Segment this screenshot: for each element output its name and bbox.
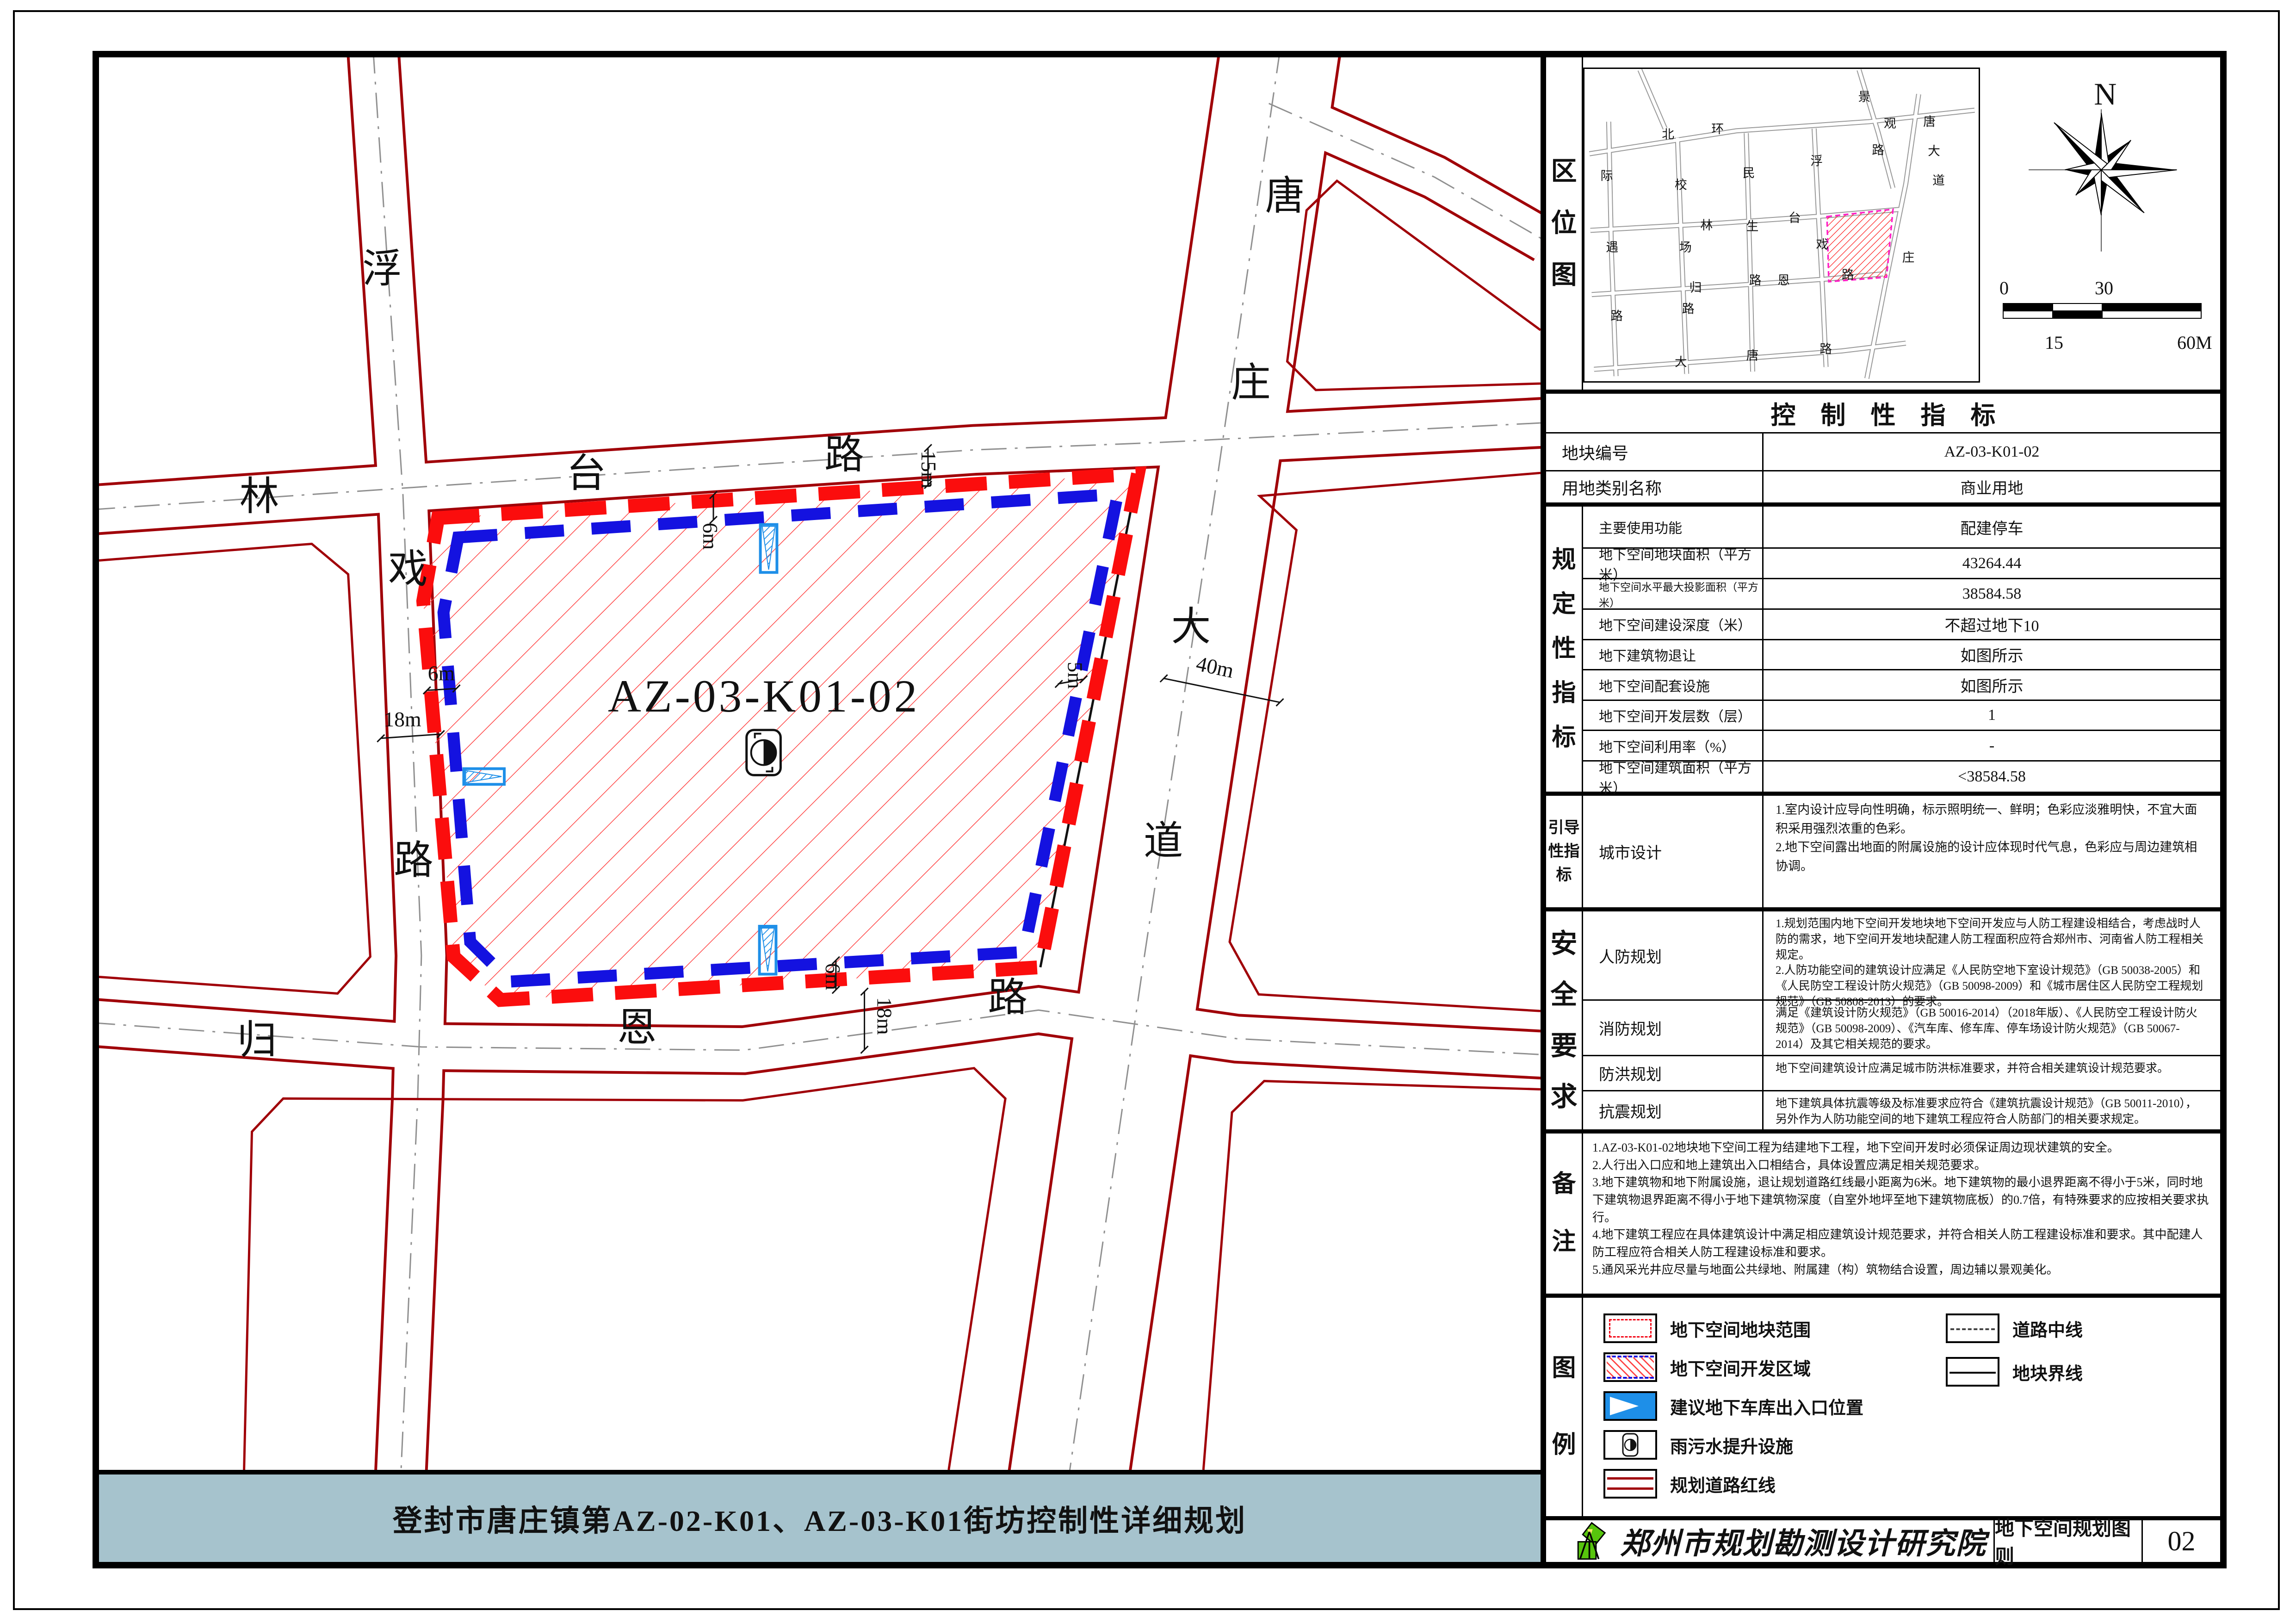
svg-text:唐: 唐 [1265, 174, 1305, 218]
institute-logo [1572, 1521, 1608, 1561]
entrance-swatch [1603, 1391, 1657, 1421]
note-item: 1.AZ-03-K01-02地块地下空间工程为结建地下工程，地下空间开发时必须保… [1592, 1139, 2211, 1157]
svg-text:60M: 60M [2177, 332, 2212, 353]
table-row: 城市设计 1.室内设计应导向性明确，标示照明统一、鲜明；色彩应淡雅明快，不宜大面… [1583, 796, 2220, 907]
table-row: 地下空间建筑面积（平方米） <38584.58 [1583, 760, 2220, 792]
svg-text:大: 大 [1928, 144, 1940, 158]
safety-text: 1.规划范围内地下空间开发地块地下空间开发应与人防工程建设相结合，考虑战时人防的… [1776, 916, 2208, 963]
table-row: 消防规划 满足《建筑设计防火规范》（GB 50016-2014）（2018年版）… [1583, 999, 2220, 1055]
table-title: 控制性指标 [1546, 394, 2220, 434]
indicator-panel: 区位图 [1546, 57, 2220, 1562]
table-row: 地下空间开发层数（层） 1 [1583, 700, 2220, 730]
svg-text:戏: 戏 [388, 547, 428, 591]
road-redline-swatch [1603, 1469, 1657, 1499]
location-section-label: 区位图 [1546, 57, 1583, 390]
svg-text:景: 景 [1858, 90, 1871, 104]
legend-item: 地块界线 [1946, 1355, 2220, 1388]
title-block: 郑州市规划勘测设计研究院 地下空间规划图则 02 [1546, 1520, 2220, 1562]
legend-item: 雨污水提升设施 [1603, 1428, 1946, 1462]
table-row: 主要使用功能 配建停车 [1583, 507, 2220, 547]
svg-text:路: 路 [824, 433, 864, 477]
svg-text:大: 大 [1675, 355, 1687, 369]
svg-text:路: 路 [1872, 143, 1884, 157]
svg-text:6m: 6m [428, 661, 455, 685]
svg-text:观: 观 [1884, 117, 1896, 130]
location-section: 区位图 [1546, 57, 2220, 394]
svg-text:唐: 唐 [1746, 348, 1759, 362]
svg-text:民: 民 [1743, 166, 1755, 180]
note-item: 3.地下建筑物和地下附属设施，退让规划道路红线最小距离为6米。地下建筑物的最小退… [1592, 1174, 2211, 1226]
sewage-lift-icon [747, 730, 781, 775]
svg-text:北: 北 [1662, 128, 1674, 142]
svg-text:N: N [2094, 76, 2117, 112]
svg-text:路: 路 [1842, 268, 1854, 282]
svg-text:路: 路 [1819, 342, 1832, 356]
table-row: 防洪规划 地下空间建筑设计应满足城市防洪标准要求，并符合相关建筑设计规范要求。 [1583, 1055, 2220, 1090]
svg-text:路: 路 [1749, 273, 1762, 287]
legend-section: 图例 地下空间地块范围 地下空间开发区域 [1546, 1298, 2220, 1520]
plan-map: 6m 18m 6m 15m 5m 40m 6m 18m 浮 戏 路 林 台 路 … [99, 57, 1541, 1470]
svg-text:30: 30 [2095, 278, 2113, 298]
svg-text:道: 道 [1144, 819, 1183, 863]
sheet-type: 地下空间规划图则 [1993, 1520, 2141, 1562]
guidance-section: 引导性指标 城市设计 1.室内设计应导向性明确，标示照明统一、鲜明；色彩应淡雅明… [1546, 796, 2220, 911]
svg-text:路: 路 [394, 838, 433, 882]
dev-area-swatch [1607, 1356, 1654, 1379]
north-arrow: N [2023, 71, 2180, 256]
table-row: 用地类别名称 商业用地 [1546, 470, 2220, 507]
svg-text:戏: 戏 [1816, 238, 1828, 252]
note-item: 4.地下建筑工程应在具体建筑设计中满足相应建筑设计规范要求，并符合相关人防工程建… [1592, 1226, 2211, 1261]
table-row: 地下空间水平最大投影面积（平方米） 38584.58 [1583, 578, 2220, 608]
legend-item: 规划道路红线 [1603, 1467, 1946, 1500]
guide-text-2: 2.地下空间露出地面的附属设施的设计应体现时代气息，色彩应与周边建筑相协调。 [1776, 838, 2208, 875]
svg-text:归: 归 [237, 1018, 277, 1062]
svg-text:大: 大 [1171, 605, 1211, 649]
svg-text:18m: 18m [873, 997, 896, 1035]
safety-section: 安全要求 人防规划 1.规划范围内地下空间开发地块地下空间开发应与人防工程建设相… [1546, 911, 2220, 1134]
table-row: 地下空间利用率（%） - [1583, 730, 2220, 760]
sewage-swatch [1603, 1430, 1657, 1460]
sheet-title-bar: 登封市唐庄镇第AZ-02-K01、AZ-03-K01街坊控制性详细规划 [99, 1470, 1541, 1562]
svg-text:庄: 庄 [1902, 250, 1915, 264]
parcel-line-swatch [1946, 1357, 1999, 1387]
svg-text:台: 台 [1789, 211, 1801, 225]
svg-text:场: 场 [1679, 240, 1692, 254]
minimap-plot [1827, 209, 1893, 282]
svg-text:林: 林 [240, 475, 279, 519]
prescriptive-section: 规定性指标 主要使用功能 配建停车 地下空间地块面积（平方米） 43264.44… [1546, 507, 2220, 796]
scale-bar: 0 30 15 60M [1994, 275, 2216, 353]
table-row: 地下空间配套设施 如图所示 [1583, 669, 2220, 700]
plot-code-label: AZ-03-K01-02 [608, 670, 920, 722]
svg-text:唐: 唐 [1923, 115, 1936, 129]
svg-text:恩: 恩 [1777, 273, 1790, 287]
table-row: 抗震规划 地下建筑具体抗震等级及标准要求应符合《建筑抗震设计规范》（GB 500… [1583, 1090, 2220, 1129]
note-item: 2.人行出入口应和地上建筑出入口相结合，具体设置应满足相关规范要求。 [1592, 1157, 2211, 1174]
svg-text:5m: 5m [1064, 662, 1087, 689]
north-and-scale: N [1980, 57, 2220, 390]
svg-text:6m: 6m [821, 963, 845, 991]
guide-text-1: 1.室内设计应导向性明确，标示照明统一、鲜明；色彩应淡雅明快，不宜大面积采用强烈… [1776, 800, 2208, 838]
svg-text:恩: 恩 [617, 1006, 657, 1050]
svg-text:15: 15 [2045, 332, 2063, 353]
plan-sheet: 6m 18m 6m 15m 5m 40m 6m 18m 浮 戏 路 林 台 路 … [0, 0, 2296, 1623]
legend-item: 道路中线 [1946, 1312, 2220, 1345]
plot-range-swatch [1609, 1319, 1652, 1338]
svg-text:归: 归 [1690, 281, 1702, 295]
svg-text:15m: 15m [917, 451, 941, 488]
table-row: 地下空间地块面积（平方米） 43264.44 [1583, 547, 2220, 578]
svg-text:校: 校 [1675, 178, 1687, 192]
svg-text:林: 林 [1701, 218, 1713, 232]
svg-text:庄: 庄 [1231, 361, 1271, 405]
svg-text:路: 路 [1682, 302, 1695, 316]
svg-text:浮: 浮 [1810, 154, 1823, 168]
svg-text:浮: 浮 [362, 247, 402, 291]
legend-item: 建议地下车库出入口位置 [1603, 1389, 1946, 1423]
location-minimap: 北环 景观 路唐 大道 庄际 遇路 校场 路民 生路 浮戏 林台 归恩 [1583, 68, 1980, 383]
svg-text:生: 生 [1746, 219, 1759, 233]
sheet-title: 登封市唐庄镇第AZ-02-K01、AZ-03-K01街坊控制性详细规划 [393, 1497, 1247, 1540]
svg-text:遇: 遇 [1606, 240, 1618, 254]
svg-text:路: 路 [988, 976, 1027, 1020]
institute-name: 郑州市规划勘测设计研究院 [1620, 1520, 1987, 1562]
table-row: 地块编号 AZ-03-K01-02 [1546, 434, 2220, 470]
sheet-number: 02 [2141, 1520, 2220, 1562]
svg-text:际: 际 [1600, 169, 1613, 183]
svg-text:台: 台 [566, 452, 606, 496]
svg-text:环: 环 [1711, 122, 1724, 136]
svg-text:路: 路 [1610, 309, 1623, 323]
note-item: 5.通风采光井应尽量与地面公共绿地、附属建（构）筑物结合设置，周边辅以景观美化。 [1592, 1261, 2211, 1279]
svg-text:0: 0 [1999, 278, 2009, 298]
table-row: 地下建筑物退让 如图所示 [1583, 639, 2220, 669]
svg-text:道: 道 [1932, 173, 1945, 187]
legend-item: 地下空间地块范围 [1603, 1312, 1946, 1345]
table-row: 地下空间建设深度（米） 不超过地下10 [1583, 608, 2220, 639]
notes-section: 备注 1.AZ-03-K01-02地块地下空间工程为结建地下工程，地下空间开发时… [1546, 1134, 2220, 1298]
table-row: 人防规划 1.规划范围内地下空间开发地块地下空间开发应与人防工程建设相结合，考虑… [1583, 911, 2220, 999]
svg-text:18m: 18m [384, 707, 421, 731]
legend-item: 地下空间开发区域 [1603, 1350, 1946, 1384]
drawing-frame: 6m 18m 6m 15m 5m 40m 6m 18m 浮 戏 路 林 台 路 … [93, 51, 2227, 1568]
svg-text:6m: 6m [699, 523, 722, 550]
centerline-swatch [1946, 1313, 1999, 1343]
panel-divider [1541, 57, 1546, 1562]
